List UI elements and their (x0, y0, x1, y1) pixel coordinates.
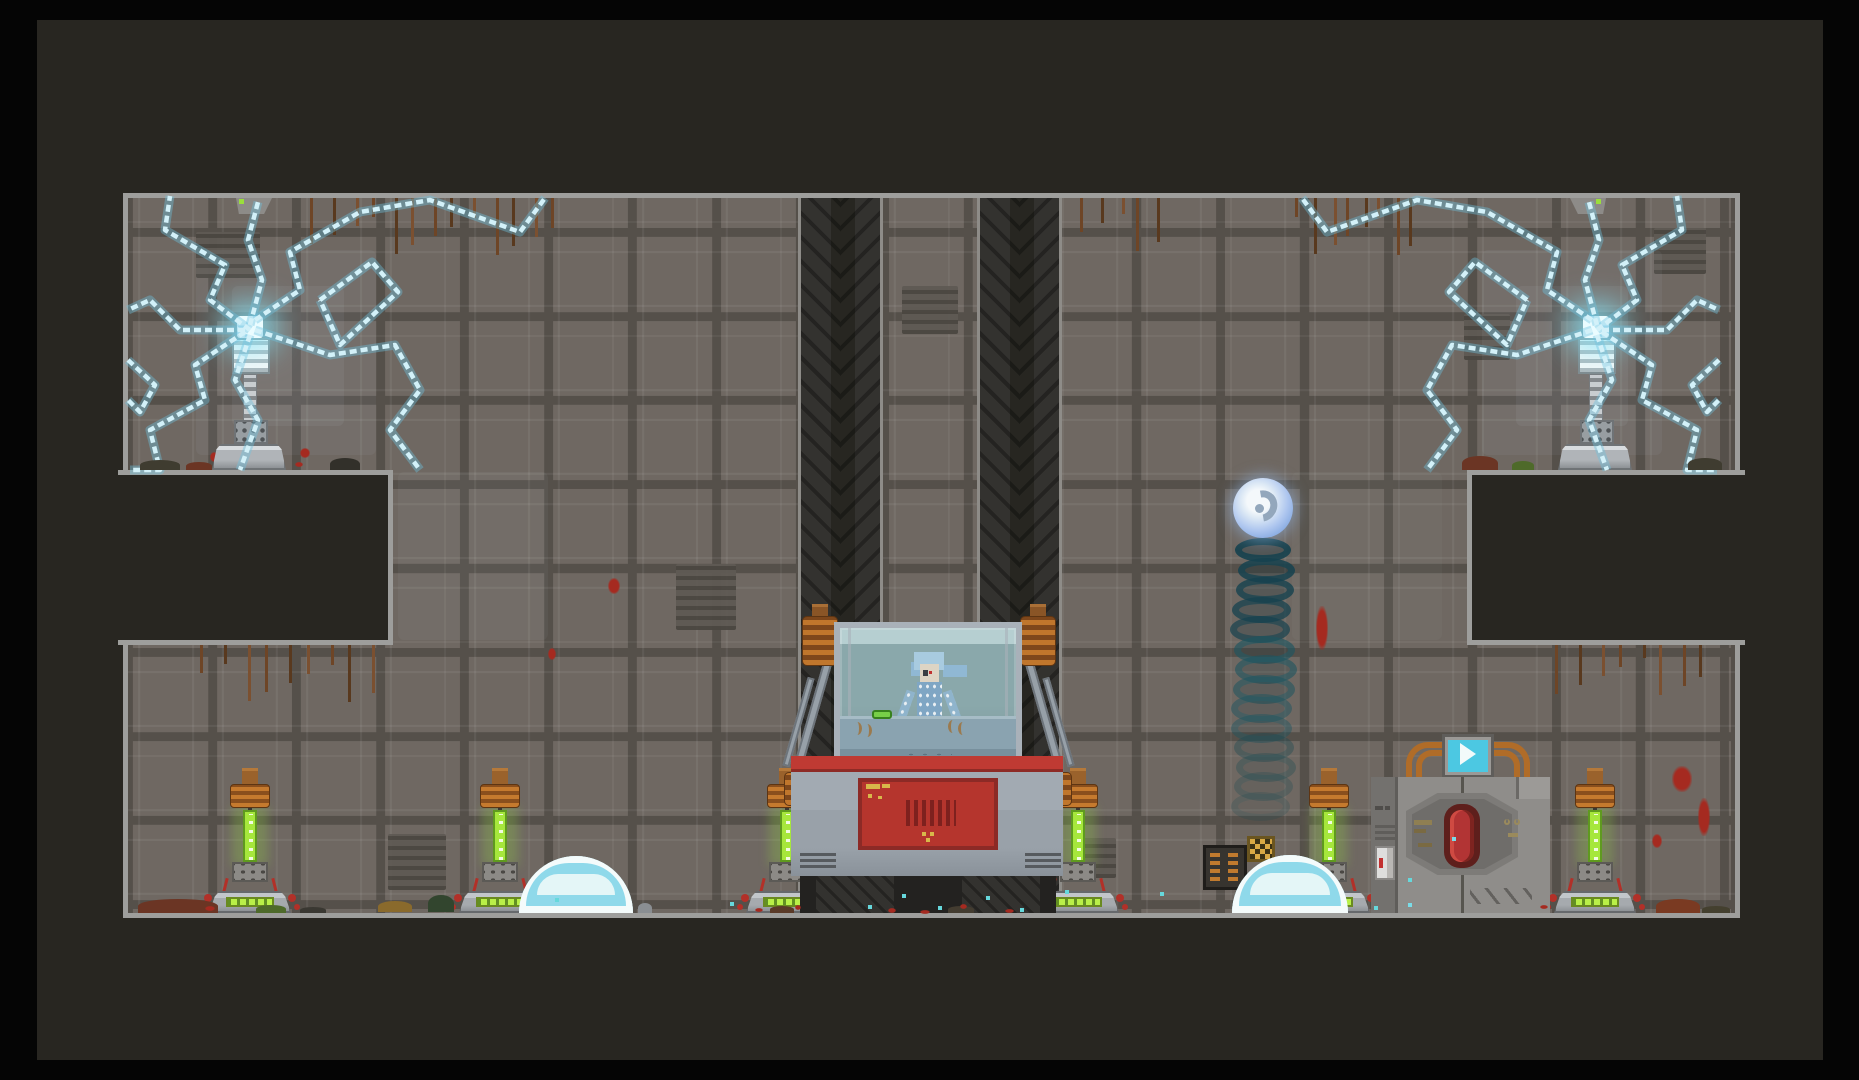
pylon-coil (480, 784, 520, 808)
pod-side-vent (800, 852, 836, 868)
pylon-hose (741, 894, 749, 902)
pylon-hose (737, 904, 743, 910)
play-icon (1460, 743, 1476, 765)
debris (1462, 456, 1498, 470)
pod-panel-vents (906, 800, 956, 826)
blood-splatter (960, 904, 967, 909)
blood-splatter (888, 908, 896, 913)
pylon-hose (1116, 894, 1124, 902)
floor-speck (1374, 906, 1378, 910)
root (1643, 645, 1646, 658)
panel-marking (878, 796, 882, 799)
door-marking (1514, 819, 1520, 825)
floor-speck (938, 906, 942, 910)
door-hatch-marks (1470, 888, 1532, 904)
pylon-cap (242, 768, 258, 784)
pylon-rod (493, 810, 507, 862)
debris (1702, 906, 1730, 913)
root (200, 645, 203, 673)
debris (330, 458, 360, 470)
blood-splatter (1698, 798, 1710, 836)
blood-splatter (920, 910, 930, 914)
blood-splatter (755, 908, 763, 912)
vent-tile (676, 564, 736, 630)
debris (1688, 458, 1722, 470)
blood-splatter (548, 648, 556, 660)
floor-speck (730, 902, 734, 906)
orb-trail-ring (1231, 792, 1290, 821)
panel-marking (868, 794, 872, 798)
claw-mark (958, 722, 966, 735)
blood-splatter (1316, 606, 1328, 650)
root (1602, 645, 1605, 676)
pylon-box (232, 862, 268, 882)
panel-marking (882, 784, 890, 788)
floor-speck (1160, 892, 1164, 896)
root (331, 645, 334, 665)
floor-speck (1408, 878, 1412, 882)
panel-glyph (922, 832, 926, 836)
door-conduit-right2 (1490, 750, 1520, 780)
pod-side-vent (1025, 852, 1061, 868)
pylon-hose (288, 894, 296, 902)
game-viewport[interactable] (0, 0, 1859, 1080)
panel-glyph (926, 838, 930, 842)
blood-splatter (1540, 905, 1548, 909)
door-marking (1418, 843, 1432, 847)
door-marking (1414, 820, 1432, 825)
floor-speck (1020, 908, 1024, 912)
door-corner-block (1516, 777, 1550, 799)
pylon-hose (1639, 904, 1645, 910)
claw-mark (948, 720, 956, 733)
floor-speck (868, 905, 872, 909)
door-vent (1375, 824, 1395, 840)
root (1157, 198, 1160, 242)
vent-tile (902, 286, 958, 334)
pylon-cap (492, 768, 508, 784)
root (1080, 198, 1083, 232)
debris (428, 895, 454, 912)
pylon-hose (1122, 904, 1128, 910)
debris (300, 907, 326, 913)
root (1683, 645, 1686, 686)
debris (186, 462, 212, 470)
pod-leg-right (962, 876, 1040, 913)
pylon-coil (1309, 784, 1349, 808)
root (289, 645, 292, 683)
pylon-hose (454, 894, 462, 902)
root (348, 645, 351, 702)
pylon-hose (1549, 894, 1557, 902)
pylon-box (1060, 862, 1096, 882)
floor-speck (1065, 890, 1069, 894)
root (224, 645, 227, 664)
skeleton-eye-glow (929, 671, 932, 674)
energy-orb[interactable] (1233, 478, 1293, 538)
pylon-rod (243, 810, 257, 862)
pylon-led (1571, 897, 1619, 907)
root (1619, 645, 1622, 667)
pylon-rod (1588, 810, 1602, 862)
specimen-capsule (872, 710, 892, 719)
pylon-box (482, 862, 518, 882)
pod-red-stripe (791, 756, 1063, 772)
root (248, 645, 251, 701)
debris (378, 901, 412, 912)
orb-swirl-tip (1255, 504, 1264, 513)
door-marking (1414, 829, 1426, 833)
pylon-cap (1587, 768, 1603, 784)
vent-tile (388, 834, 446, 890)
root (1101, 198, 1104, 223)
debris (638, 903, 652, 913)
debris (1512, 461, 1534, 470)
lightning-arcs (100, 180, 620, 500)
pod-leg-left (816, 876, 894, 913)
door-marking (1385, 806, 1390, 810)
lightning-arcs (1227, 180, 1747, 500)
debris (256, 905, 286, 913)
root (372, 645, 375, 693)
pylon-box (1577, 862, 1613, 882)
blood-splatter (295, 462, 303, 467)
door-marking (1504, 819, 1510, 825)
panel-glyph (930, 832, 934, 836)
blood-splatter (1005, 909, 1014, 913)
root (1122, 198, 1125, 214)
pylon-rod (1322, 810, 1336, 862)
floor-speck (555, 898, 559, 902)
door-speck (1408, 903, 1412, 907)
door-capsule (1444, 804, 1480, 868)
door-side-column (1371, 777, 1398, 913)
debris (140, 460, 180, 470)
blood-splatter (795, 905, 801, 910)
floor-speck (902, 894, 906, 898)
pylon-rod (1071, 810, 1085, 862)
root (1136, 198, 1139, 251)
root (1579, 645, 1582, 685)
floor-speck (986, 896, 990, 900)
pod-coil-left (802, 616, 838, 666)
pod-coil-right (1020, 616, 1056, 666)
blood-splatter (205, 906, 215, 911)
root (1555, 645, 1558, 694)
root (265, 645, 268, 692)
door-switch[interactable] (1375, 846, 1395, 880)
pylon-coil (230, 784, 270, 808)
capsule-speck (1452, 837, 1456, 841)
pylon-hose (1633, 894, 1641, 902)
door-monitor[interactable] (1442, 734, 1494, 778)
pylon-cap (1070, 768, 1086, 784)
pylon-cap (1321, 768, 1337, 784)
blood-splatter (1652, 834, 1662, 848)
pylon-coil (1575, 784, 1615, 808)
blood-splatter (608, 578, 620, 594)
door-marking (1508, 833, 1518, 837)
door-marking (1375, 806, 1383, 810)
skeleton-eye (923, 670, 928, 676)
pod-deck (840, 716, 1016, 760)
panel-marking (866, 784, 880, 789)
root (1659, 645, 1662, 695)
debris (1656, 899, 1700, 913)
pylon-led (476, 897, 524, 907)
debris (770, 906, 794, 913)
root (1699, 645, 1702, 677)
blood-splatter (1672, 766, 1692, 792)
root (307, 645, 310, 674)
pylon-led (1054, 897, 1102, 907)
